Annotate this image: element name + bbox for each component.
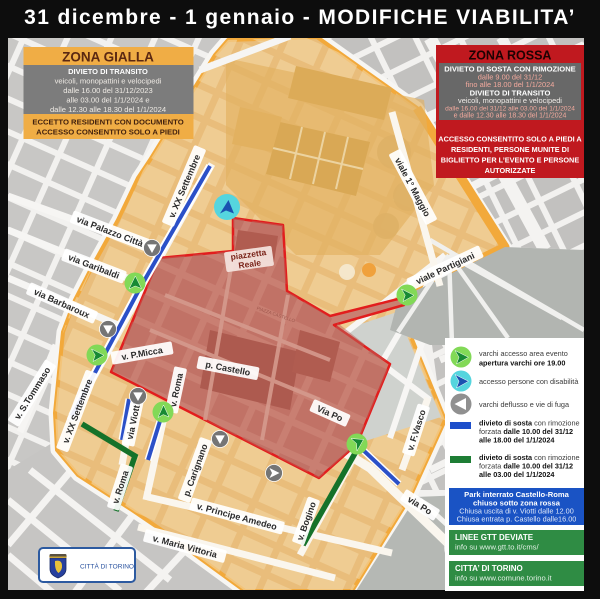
- svg-text:Chiusa entrata p. Castello dal: Chiusa entrata p. Castello dalle16.00: [457, 515, 577, 524]
- svg-text:info su www.comune.torino.it: info su www.comune.torino.it: [455, 574, 553, 583]
- svg-text:ZONA ROSSA: ZONA ROSSA: [469, 49, 552, 63]
- svg-text:alle 03.00 del 1/1/2024 e: alle 03.00 del 1/1/2024 e: [66, 96, 149, 105]
- svg-text:ZONA GIALLA: ZONA GIALLA: [62, 50, 154, 65]
- svg-text:accesso persone con disabilità: accesso persone con disabilità: [479, 377, 579, 386]
- svg-text:apertura varchi ore 19.00: apertura varchi ore 19.00: [479, 359, 565, 368]
- svg-text:DIVIETO DI TRANSITO: DIVIETO DI TRANSITO: [68, 67, 148, 76]
- svg-text:alle 18.00 del 1/1/2024: alle 18.00 del 1/1/2024: [479, 436, 555, 445]
- svg-text:alle 03.00 del 1/1/2024: alle 03.00 del 1/1/2024: [479, 470, 555, 479]
- svg-text:ACCESSO CONSENTITO SOLO A PIED: ACCESSO CONSENTITO SOLO A PIEDI A: [438, 135, 582, 144]
- svg-text:veicoli, monopattini e velocip: veicoli, monopattini e velocipedi: [55, 77, 162, 86]
- svg-text:dalle 12.30 alle 18.30 del 1/1: dalle 12.30 alle 18.30 del 1/1/2024: [50, 105, 166, 114]
- svg-text:CITTA’ DI TORINO: CITTA’ DI TORINO: [455, 564, 523, 573]
- svg-text:CITTÀ DI TORINO: CITTÀ DI TORINO: [80, 562, 134, 571]
- svg-text:LINEE GTT DEVIATE: LINEE GTT DEVIATE: [455, 533, 534, 542]
- svg-text:e dalle 12.30 alle 18.30 del 1: e dalle 12.30 alle 18.30 del 1/1/2024: [454, 113, 567, 120]
- svg-text:31 dicembre - 1 gennaio - MODI: 31 dicembre - 1 gennaio - MODIFICHE VIAB…: [24, 6, 576, 29]
- svg-text:BIGLIETTO PER L’EVENTO E PERSO: BIGLIETTO PER L’EVENTO E PERSONE: [441, 156, 580, 165]
- svg-text:dalle 16.00 del 31/12/2023: dalle 16.00 del 31/12/2023: [63, 86, 153, 95]
- svg-text:varchi deflusso e vie di fuga: varchi deflusso e vie di fuga: [479, 400, 570, 409]
- svg-text:RESIDENTI, PERSONE MUNITE DI: RESIDENTI, PERSONE MUNITE DI: [451, 145, 569, 154]
- svg-text:varchi accesso area evento: varchi accesso area evento: [479, 349, 568, 358]
- svg-text:info su www.gtt.to.it/cms/: info su www.gtt.to.it/cms/: [455, 543, 539, 552]
- svg-text:veicoli, monopattini e velocip: veicoli, monopattini e velocipedi: [458, 96, 562, 105]
- svg-text:AUTORIZZATE: AUTORIZZATE: [485, 166, 536, 175]
- svg-text:ACCESSO CONSENTITO SOLO A PIED: ACCESSO CONSENTITO SOLO A PIEDI: [36, 128, 180, 137]
- svg-text:dalle 16.00 del 31/12 alle 03.: dalle 16.00 del 31/12 alle 03.00 del 1/1…: [445, 106, 575, 113]
- svg-text:ECCETTO RESIDENTI CON DOCUMENT: ECCETTO RESIDENTI CON DOCUMENTO: [32, 118, 183, 127]
